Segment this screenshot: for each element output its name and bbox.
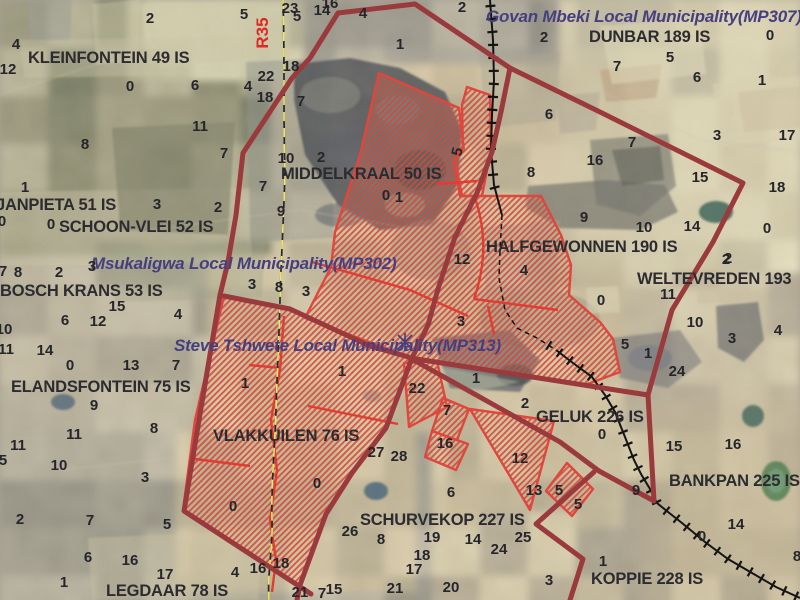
svg-text:21: 21 — [292, 584, 309, 600]
svg-text:2: 2 — [55, 264, 63, 281]
svg-text:17: 17 — [779, 127, 796, 144]
svg-text:1: 1 — [472, 370, 480, 387]
svg-text:9: 9 — [580, 209, 588, 226]
svg-text:2: 2 — [214, 199, 222, 216]
svg-text:Msukaligwa Local Municipality(: Msukaligwa Local Municipality(MP302) — [91, 254, 397, 273]
svg-text:0: 0 — [382, 187, 390, 204]
svg-text:7: 7 — [613, 58, 621, 75]
svg-text:BOSCH KRANS 53 IS: BOSCH KRANS 53 IS — [0, 282, 163, 300]
svg-text:0: 0 — [0, 213, 6, 230]
svg-text:21: 21 — [387, 580, 404, 597]
svg-text:0: 0 — [763, 220, 771, 237]
svg-text:11: 11 — [192, 118, 208, 135]
svg-text:1: 1 — [599, 553, 607, 570]
svg-text:5: 5 — [240, 6, 248, 23]
svg-text:27: 27 — [368, 444, 385, 461]
svg-text:8: 8 — [275, 279, 283, 296]
svg-text:5: 5 — [574, 496, 582, 513]
svg-text:18: 18 — [273, 555, 290, 572]
svg-text:0: 0 — [698, 528, 706, 545]
svg-text:0: 0 — [313, 475, 321, 492]
svg-text:5: 5 — [0, 452, 7, 469]
svg-text:5: 5 — [163, 516, 171, 533]
svg-text:3: 3 — [302, 283, 310, 300]
svg-text:5: 5 — [293, 8, 301, 25]
svg-text:1: 1 — [60, 574, 68, 591]
svg-text:4: 4 — [231, 564, 240, 581]
svg-text:3: 3 — [713, 127, 721, 144]
svg-text:10: 10 — [0, 321, 12, 338]
svg-text:16: 16 — [322, 0, 339, 12]
svg-text:7: 7 — [297, 93, 305, 110]
svg-text:6: 6 — [191, 77, 199, 94]
svg-text:1: 1 — [21, 179, 29, 196]
svg-text:3: 3 — [728, 330, 736, 347]
svg-text:8: 8 — [150, 420, 158, 437]
svg-text:GELUK 226 IS: GELUK 226 IS — [536, 408, 644, 426]
svg-text:15: 15 — [109, 298, 126, 315]
svg-text:16: 16 — [725, 436, 742, 453]
svg-text:6: 6 — [545, 106, 553, 123]
svg-text:10: 10 — [636, 219, 653, 236]
svg-text:15: 15 — [326, 581, 343, 598]
svg-text:7: 7 — [220, 145, 228, 162]
svg-text:3: 3 — [545, 572, 553, 589]
svg-text:0: 0 — [126, 78, 134, 95]
svg-text:0: 0 — [47, 216, 55, 233]
svg-text:3: 3 — [457, 313, 465, 330]
svg-text:R35: R35 — [253, 17, 272, 48]
svg-text:1: 1 — [644, 345, 652, 362]
svg-text:6: 6 — [84, 549, 92, 566]
svg-text:16: 16 — [250, 560, 267, 577]
svg-text:7: 7 — [318, 585, 326, 600]
svg-text:17: 17 — [157, 566, 174, 583]
svg-text:5: 5 — [621, 336, 629, 353]
svg-text:9: 9 — [277, 203, 285, 220]
svg-text:2: 2 — [16, 511, 24, 528]
svg-text:9: 9 — [90, 397, 98, 414]
svg-text:1: 1 — [241, 375, 249, 392]
svg-text:1: 1 — [338, 363, 346, 380]
svg-text:BANKPAN 225 IS: BANKPAN 225 IS — [669, 472, 800, 490]
svg-text:14: 14 — [728, 516, 745, 533]
svg-text:4: 4 — [12, 36, 21, 53]
svg-text:ELANDSFONTEIN 75 IS: ELANDSFONTEIN 75 IS — [11, 378, 191, 396]
svg-text:22: 22 — [258, 68, 275, 85]
svg-text:11: 11 — [66, 426, 82, 443]
svg-text:13: 13 — [123, 357, 140, 374]
svg-text:18: 18 — [283, 58, 300, 75]
svg-text:LEGDAAR 78 IS: LEGDAAR 78 IS — [106, 582, 228, 600]
svg-text:9: 9 — [632, 482, 640, 499]
svg-text:18: 18 — [769, 179, 786, 196]
svg-text:SCHOON-VLEI 52 IS: SCHOON-VLEI 52 IS — [59, 218, 213, 236]
svg-text:13: 13 — [526, 482, 543, 499]
svg-text:11: 11 — [660, 286, 676, 303]
svg-text:0: 0 — [66, 357, 74, 374]
svg-text:Govan Mbeki Local Municipality: Govan Mbeki Local Municipality(MP307) — [486, 7, 800, 26]
svg-text:1: 1 — [396, 36, 404, 53]
svg-text:14: 14 — [465, 531, 482, 548]
svg-text:25: 25 — [515, 529, 532, 546]
svg-text:8: 8 — [377, 531, 385, 548]
svg-text:4: 4 — [774, 322, 783, 339]
svg-text:10: 10 — [51, 457, 68, 474]
svg-text:12: 12 — [90, 313, 107, 330]
svg-text:14: 14 — [37, 342, 54, 359]
svg-text:KOPPIE 228 IS: KOPPIE 228 IS — [591, 570, 703, 588]
svg-text:6: 6 — [693, 69, 701, 86]
svg-text:4: 4 — [520, 262, 529, 279]
svg-text:11: 11 — [0, 341, 14, 358]
svg-text:0: 0 — [598, 426, 606, 443]
svg-text:2: 2 — [540, 29, 548, 46]
svg-text:7: 7 — [628, 134, 636, 151]
svg-text:26: 26 — [342, 523, 359, 540]
svg-text:7: 7 — [86, 512, 94, 529]
svg-text:2: 2 — [458, 0, 466, 16]
svg-text:3: 3 — [153, 196, 161, 213]
svg-text:10: 10 — [278, 150, 295, 167]
svg-text:16: 16 — [437, 435, 454, 452]
svg-text:12: 12 — [0, 61, 16, 78]
svg-text:5: 5 — [666, 49, 674, 66]
svg-text:14: 14 — [684, 218, 701, 235]
svg-text:15: 15 — [692, 169, 709, 186]
svg-text:28: 28 — [391, 448, 408, 465]
svg-text:3: 3 — [248, 276, 256, 293]
svg-text:1: 1 — [758, 72, 766, 89]
svg-text:16: 16 — [122, 552, 139, 569]
svg-text:2: 2 — [724, 250, 732, 267]
svg-text:7: 7 — [172, 357, 180, 374]
svg-text:JANPIETA 51 IS: JANPIETA 51 IS — [0, 196, 116, 214]
svg-text:HALFGEWONNEN 190 IS: HALFGEWONNEN 190 IS — [486, 238, 678, 256]
svg-text:16: 16 — [587, 152, 604, 169]
svg-text:7: 7 — [443, 402, 451, 419]
svg-text:VLAKKUILEN 76 IS: VLAKKUILEN 76 IS — [213, 427, 359, 445]
svg-text:15: 15 — [666, 438, 683, 455]
svg-text:4: 4 — [244, 78, 253, 95]
svg-text:0: 0 — [766, 27, 774, 44]
svg-text:0: 0 — [597, 292, 605, 309]
svg-text:10: 10 — [687, 314, 704, 331]
svg-text:6: 6 — [447, 484, 455, 501]
svg-text:24: 24 — [669, 363, 686, 380]
svg-text:DUNBAR 189 IS: DUNBAR 189 IS — [589, 28, 710, 46]
svg-text:1: 1 — [395, 189, 403, 206]
svg-text:7: 7 — [0, 263, 7, 280]
svg-text:24: 24 — [491, 541, 508, 558]
svg-text:3: 3 — [88, 258, 96, 275]
svg-text:SCHURVEKOP 227 IS: SCHURVEKOP 227 IS — [360, 511, 525, 529]
svg-text:8: 8 — [793, 548, 800, 565]
svg-text:3: 3 — [141, 469, 149, 486]
svg-text:0: 0 — [229, 498, 237, 515]
svg-text:KLEINFONTEIN 49 IS: KLEINFONTEIN 49 IS — [28, 49, 190, 67]
svg-text:20: 20 — [443, 579, 460, 596]
svg-text:18: 18 — [257, 89, 274, 106]
svg-text:MIDDELKRAAL 50 IS: MIDDELKRAAL 50 IS — [281, 165, 442, 183]
svg-text:6: 6 — [61, 312, 69, 329]
svg-text:7: 7 — [259, 178, 267, 195]
svg-text:8: 8 — [527, 164, 535, 181]
svg-text:4: 4 — [174, 306, 183, 323]
svg-text:Steve Tshwete Local Municipali: Steve Tshwete Local Municipality(MP313) — [174, 336, 501, 355]
svg-text:4: 4 — [359, 5, 368, 22]
svg-text:8: 8 — [14, 264, 22, 281]
svg-text:11: 11 — [10, 437, 26, 454]
svg-text:19: 19 — [424, 529, 441, 546]
svg-text:17: 17 — [406, 561, 423, 578]
svg-text:8: 8 — [81, 136, 89, 153]
svg-text:2: 2 — [521, 395, 529, 412]
svg-text:5: 5 — [555, 482, 563, 499]
svg-text:12: 12 — [454, 251, 471, 268]
svg-text:22: 22 — [409, 380, 426, 397]
svg-text:2: 2 — [317, 149, 325, 166]
svg-text:2: 2 — [146, 10, 154, 27]
svg-text:12: 12 — [512, 450, 529, 467]
